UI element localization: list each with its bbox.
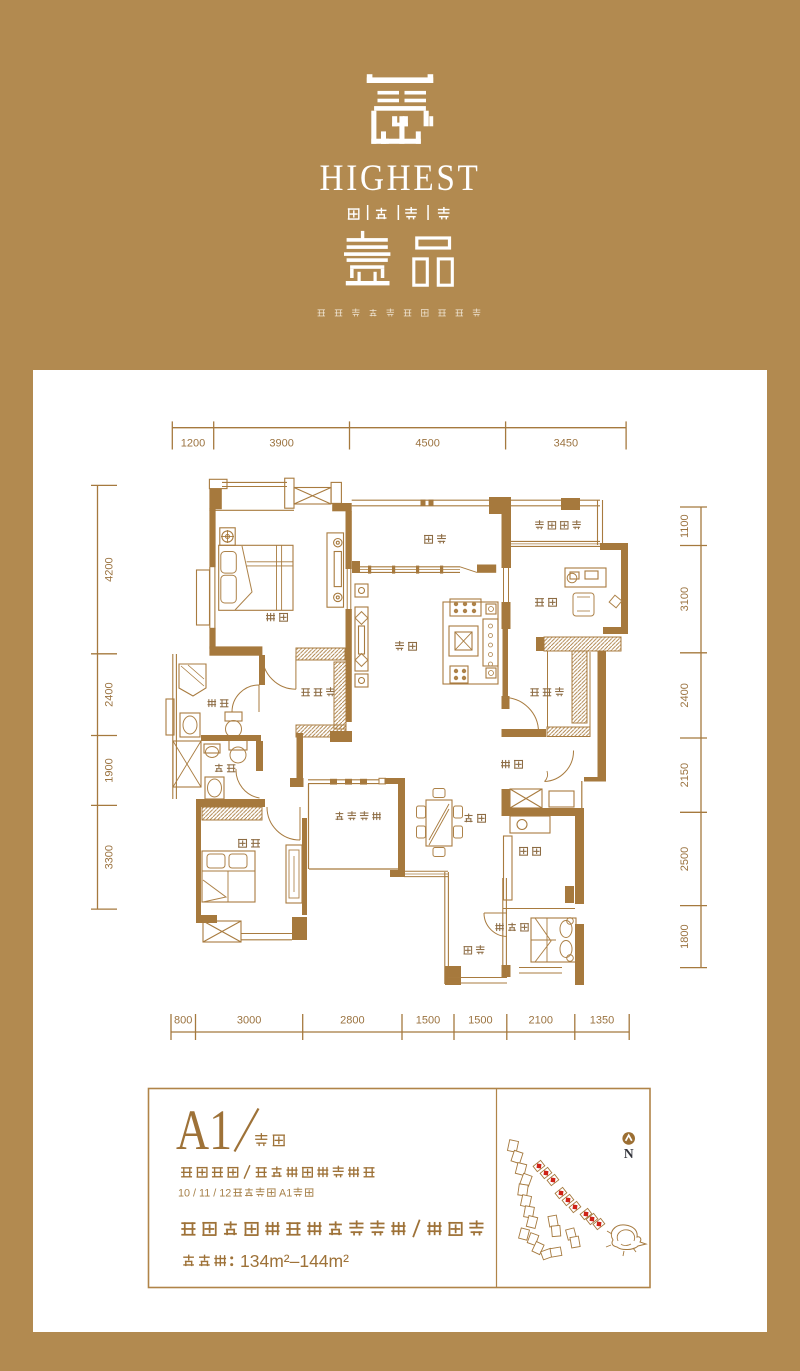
svg-text:4200: 4200: [104, 557, 116, 581]
svg-text:A1: A1: [279, 1187, 292, 1199]
svg-text:3000: 3000: [237, 1015, 261, 1027]
svg-text:1100: 1100: [679, 514, 691, 538]
svg-text:10 / 11 / 12: 10 / 11 / 12: [178, 1187, 231, 1199]
svg-text:2400: 2400: [679, 683, 691, 707]
svg-text:134m²–144m²: 134m²–144m²: [240, 1251, 349, 1271]
svg-text:1500: 1500: [468, 1015, 492, 1027]
svg-text:1200: 1200: [181, 438, 205, 450]
svg-text:1900: 1900: [104, 758, 116, 782]
svg-text:3100: 3100: [679, 587, 691, 611]
svg-text:3450: 3450: [554, 438, 578, 450]
svg-text:2150: 2150: [679, 763, 691, 787]
svg-text:3300: 3300: [104, 845, 116, 869]
svg-text:N: N: [624, 1146, 634, 1161]
svg-text:1500: 1500: [416, 1015, 440, 1027]
svg-text:3900: 3900: [269, 438, 293, 450]
svg-text:4500: 4500: [415, 438, 439, 450]
svg-text:1350: 1350: [590, 1015, 614, 1027]
svg-text:2400: 2400: [104, 682, 116, 706]
svg-text:2500: 2500: [679, 847, 691, 871]
svg-text:2100: 2100: [529, 1015, 553, 1027]
svg-text:HIGHEST: HIGHEST: [320, 158, 481, 199]
svg-text:1800: 1800: [679, 924, 691, 948]
svg-text:A1: A1: [176, 1099, 232, 1162]
svg-text:2800: 2800: [340, 1015, 364, 1027]
svg-text:800: 800: [174, 1015, 192, 1027]
